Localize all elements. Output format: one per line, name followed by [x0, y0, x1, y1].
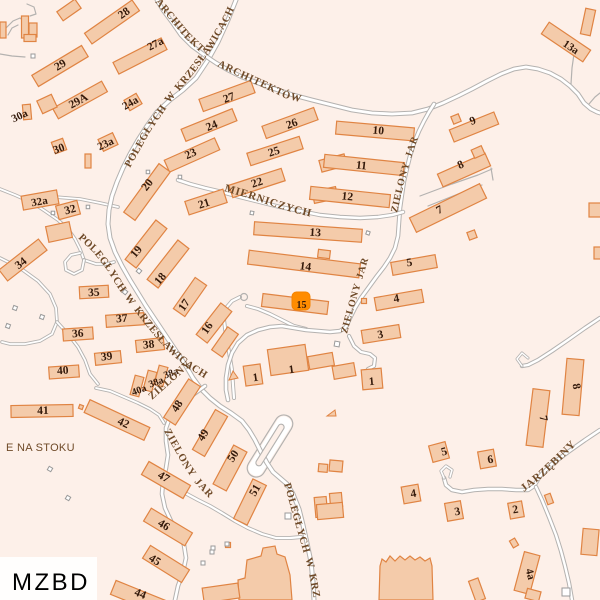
svg-text:E NA STOKU: E NA STOKU — [6, 442, 75, 454]
svg-text:MZBD: MZBD — [12, 569, 90, 596]
svg-text:38: 38 — [142, 338, 155, 351]
svg-text:15: 15 — [297, 300, 307, 311]
svg-text:39: 39 — [100, 350, 113, 363]
svg-text:10: 10 — [372, 125, 385, 138]
svg-text:36: 36 — [72, 328, 85, 341]
svg-text:37: 37 — [116, 313, 129, 326]
svg-text:14: 14 — [299, 260, 312, 273]
svg-text:13: 13 — [309, 227, 322, 240]
svg-text:35: 35 — [88, 287, 100, 300]
svg-text:12: 12 — [341, 190, 354, 203]
svg-text:41: 41 — [37, 405, 49, 417]
svg-text:11: 11 — [355, 159, 367, 172]
svg-text:40: 40 — [57, 365, 70, 378]
